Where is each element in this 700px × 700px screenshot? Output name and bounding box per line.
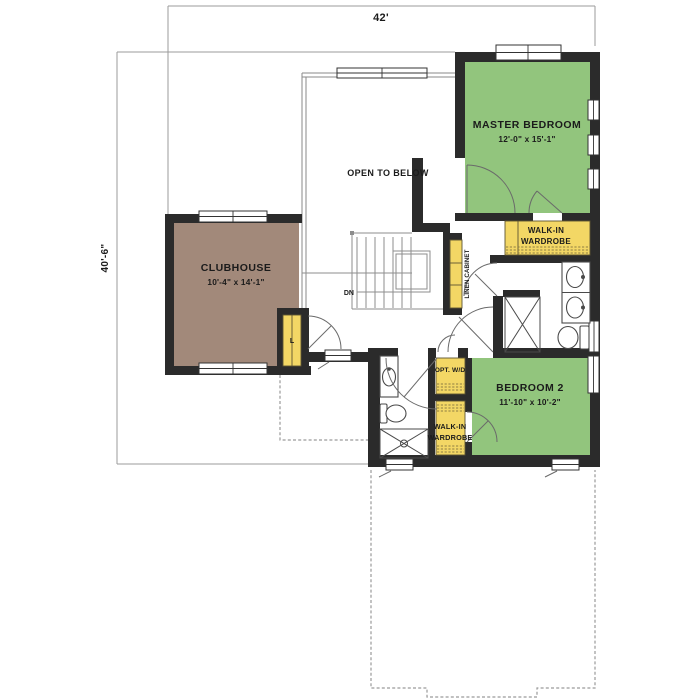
toilet-icon [380,404,406,423]
sink-icon [567,267,584,288]
linen-closet-abbr-label: L [290,338,295,345]
bedroom2-wardrobe-label-1: WALK-IN [434,422,467,431]
floor-plan-canvas: 42' 40'-6" DN [0,0,700,700]
open-to-below-label: OPEN TO BELOW [347,168,429,178]
linen-cabinet [450,240,462,308]
master-wardrobe-label-1: WALK-IN [528,226,564,235]
staircase: DN [302,231,443,309]
master-bedroom-size: 12'-0" x 15'-1" [498,134,555,144]
window [588,169,599,189]
door-swing [308,316,341,349]
clubhouse-label: CLUBHOUSE [201,262,272,274]
window [588,135,599,155]
toilet-icon [558,326,589,349]
window [199,211,267,222]
bedroom2-size: 11'-10" x 10'-2" [499,397,561,407]
master-bathroom-fixtures [505,262,590,352]
window [337,68,427,78]
window [199,363,267,374]
sink-icon [567,297,584,318]
door-swing [438,335,455,352]
height-dimension-label: 40'-6" [100,244,111,273]
bedroom2-label: BEDROOM 2 [496,382,564,394]
stairs-down-label: DN [344,290,354,297]
window [588,100,599,120]
linen-cabinet-label: LINEN CABINET [464,249,471,298]
opt-washer-dryer-cabinet [436,358,465,394]
window [588,356,599,393]
window [496,45,561,60]
bedroom2-wardrobe-label-2: WARDROBE [428,433,473,442]
shower-icon [380,429,428,458]
shower-icon [505,297,540,352]
master-bedroom-label: MASTER BEDROOM [473,119,581,131]
master-wardrobe-label-2: WARDROBE [521,237,571,246]
floor-plan-page: 42' 40'-6" DN [0,0,700,700]
window [589,321,599,352]
clubhouse-size: 10'-4" x 14'-1" [207,277,264,287]
width-dimension-label: 42' [373,12,389,24]
opt-wd-label: OPT. W/D [435,367,466,374]
